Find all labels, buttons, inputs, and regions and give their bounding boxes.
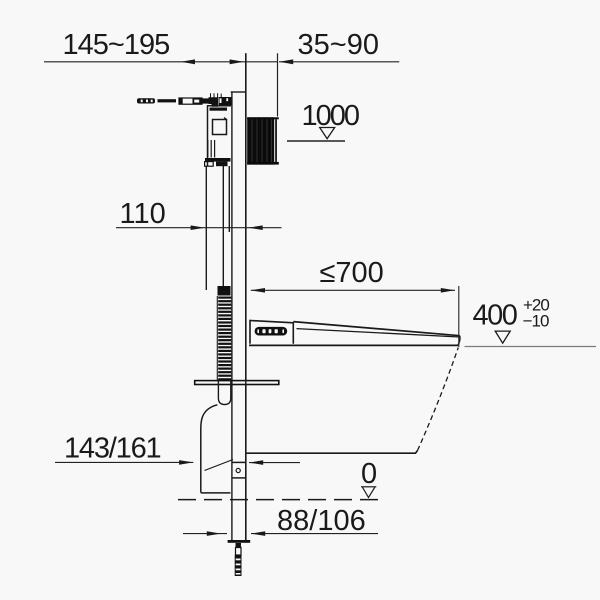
svg-text:110: 110 bbox=[120, 198, 166, 230]
svg-text:143/161: 143/161 bbox=[64, 433, 160, 465]
svg-text:145~195: 145~195 bbox=[63, 29, 170, 61]
svg-text:−10: −10 bbox=[523, 312, 549, 331]
svg-text:400: 400 bbox=[473, 300, 517, 332]
svg-text:88/106: 88/106 bbox=[277, 505, 366, 537]
svg-text:35~90: 35~90 bbox=[298, 29, 379, 61]
svg-text:≤700: ≤700 bbox=[320, 257, 384, 289]
svg-text:0: 0 bbox=[361, 458, 377, 490]
